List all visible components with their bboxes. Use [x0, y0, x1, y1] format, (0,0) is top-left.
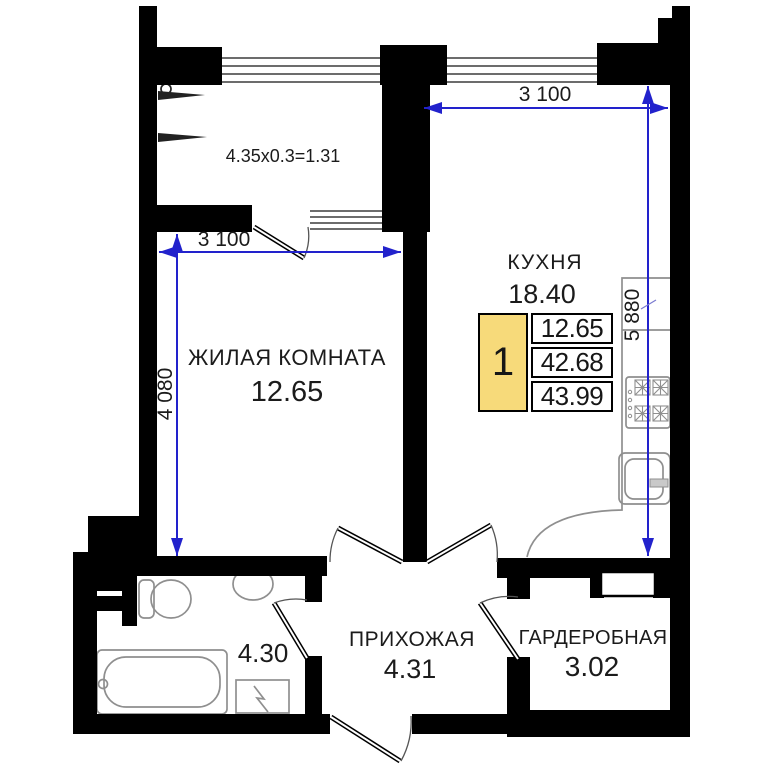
room-living-name: ЖИЛАЯ КОМНАТА — [167, 346, 407, 369]
room-living-area: 12.65 — [187, 377, 387, 407]
room-wardrobe-name: ГАРДЕРОБНАЯ — [513, 628, 673, 649]
washing-machine-icon — [236, 680, 289, 713]
toilet-icon — [139, 580, 191, 618]
floor-plan: 4.35x0.3=1.31 3 100 4 080 3 100 5 880 КУ… — [0, 0, 768, 768]
dim-kitchen-height-label: 5 880 — [622, 250, 644, 380]
info-living-area-value: 12.65 — [531, 313, 613, 344]
balcony-size-label: 4.35x0.3=1.31 — [193, 147, 373, 166]
kitchen-sink-icon — [619, 453, 670, 504]
apartment-info-box: 1 12.65 42.68 43.99 — [478, 313, 613, 412]
room-hallway-name: ПРИХОЖАЯ — [332, 629, 492, 651]
room-kitchen-name: КУХНЯ — [465, 252, 625, 274]
living-balcony-window — [310, 211, 382, 229]
info-area-value: 42.68 — [531, 347, 613, 378]
room-hallway-area: 4.31 — [330, 655, 490, 683]
dim-living-width-label: 3 100 — [159, 229, 289, 251]
room-bathroom-area: 4.30 — [203, 640, 323, 667]
info-room-count: 1 — [478, 313, 528, 412]
wardrobe-cabinet — [601, 572, 655, 596]
room-kitchen-area: 18.40 — [462, 280, 622, 308]
room-wardrobe-area: 3.02 — [512, 652, 672, 681]
balcony-glazing — [222, 58, 382, 82]
balcony-vent-marks — [158, 84, 207, 142]
info-total-area-value: 43.99 — [531, 381, 613, 412]
dim-kitchen-width-label: 3 100 — [480, 84, 610, 106]
kitchen-window — [447, 58, 597, 82]
